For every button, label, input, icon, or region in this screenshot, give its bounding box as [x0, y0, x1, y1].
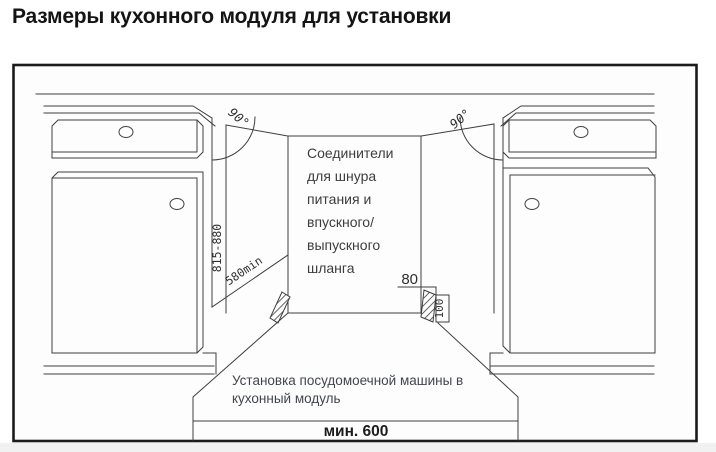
connector-note-line: впускного/ [307, 211, 393, 234]
connector-note-line: для шнура [307, 165, 393, 188]
connector-note-line: питания и [307, 188, 393, 211]
cabinet-height-dimension: 815-880 [210, 224, 224, 273]
niche-width-dimension: мин. 600 [324, 423, 389, 440]
connector-note-line: выпускного [307, 234, 393, 257]
connector-note-line: Соединители [307, 142, 393, 165]
install-note-line: кухонный модуль [232, 390, 463, 408]
install-note: Установка посудомоечной машины в кухонны… [232, 372, 463, 408]
hose-offset-top-label: 80 [401, 271, 418, 288]
connector-note: Соединители для шнура питания и впускног… [307, 142, 393, 280]
manual-page: Размеры кухонного модуля для установки [0, 0, 716, 452]
connector-note-line: шланга [307, 257, 393, 280]
hose-offset-side-label: 100 [433, 299, 446, 319]
install-note-line: Установка посудомоечной машины в [232, 372, 463, 390]
